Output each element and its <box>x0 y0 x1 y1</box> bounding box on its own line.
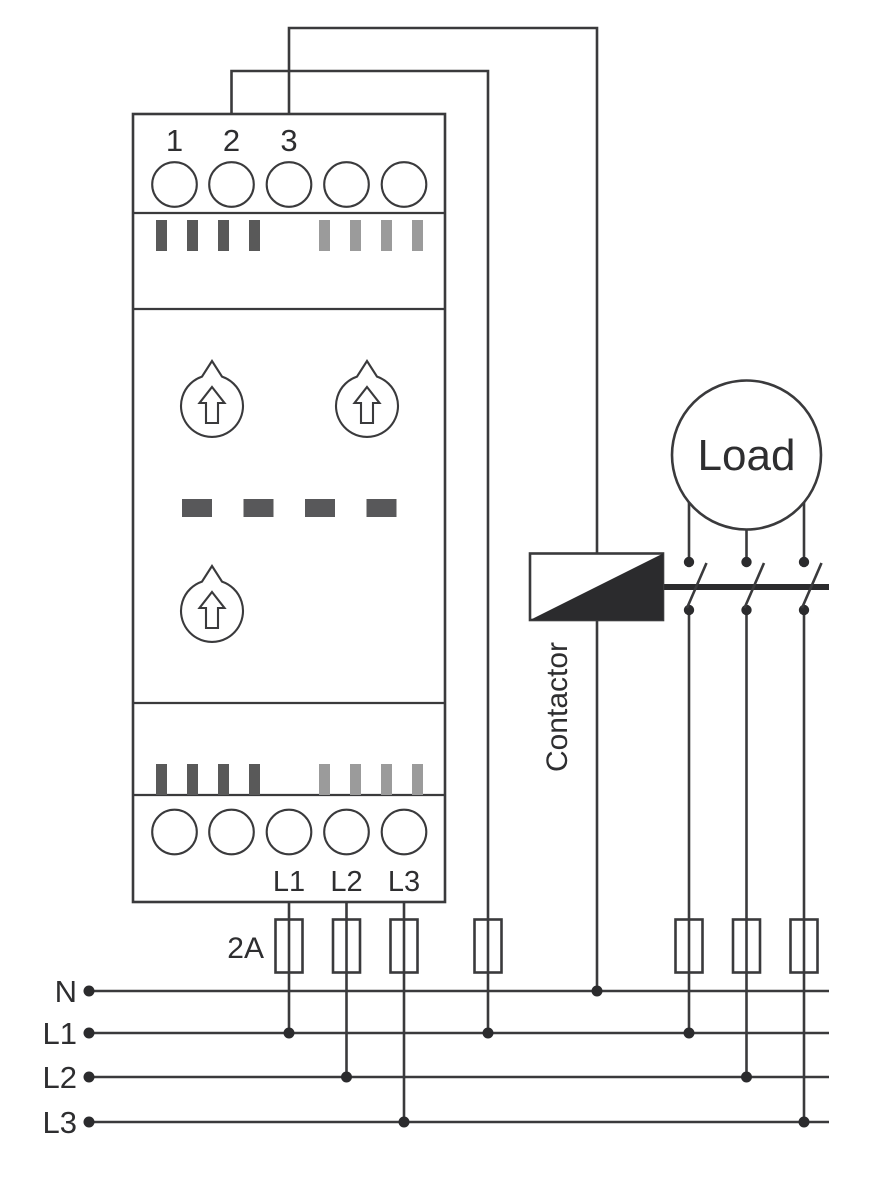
fuse-rating-label: 2A <box>227 932 264 965</box>
vent-slot <box>381 764 392 795</box>
terminal-number-label: 1 <box>166 123 183 158</box>
vent-slot <box>249 764 260 795</box>
bus-endpoint-dot <box>84 1028 95 1039</box>
terminal-hole <box>209 810 254 855</box>
vent-slot <box>381 220 392 251</box>
vent-slot <box>412 764 423 795</box>
terminal-hole <box>382 810 427 855</box>
contactor-contacts <box>663 557 829 615</box>
vent-slot <box>350 220 361 251</box>
bus-label-l2: L2 <box>43 1060 77 1095</box>
contact-dot <box>741 557 751 567</box>
junction-dot <box>799 1117 810 1128</box>
load-label: Load <box>698 431 796 480</box>
display-segment <box>305 499 335 517</box>
vent-slot <box>156 764 167 795</box>
terminal-hole <box>152 162 197 207</box>
junction-dot <box>341 1072 352 1083</box>
vent-slot <box>156 220 167 251</box>
fuses: 2A <box>227 920 817 973</box>
vent-slot <box>319 764 330 795</box>
vent-slot <box>218 764 229 795</box>
device-outline <box>133 114 445 902</box>
vent-slot <box>350 764 361 795</box>
junction-dot <box>741 1072 752 1083</box>
contact-dot <box>799 557 809 567</box>
junction-dot <box>399 1117 410 1128</box>
load: Load <box>672 381 821 530</box>
bus-label-n: N <box>55 974 77 1009</box>
terminal-hole <box>324 810 369 855</box>
display-segment <box>244 499 274 517</box>
vent-slot <box>412 220 423 251</box>
junctions <box>284 986 810 1128</box>
wiring-diagram: N L1 L2 L3 2A Load <box>0 0 874 1180</box>
bus-endpoint-dot <box>84 1117 95 1128</box>
vent-slot <box>249 220 260 251</box>
terminal-hole <box>267 810 312 855</box>
terminal-number-label: 2 <box>223 123 240 158</box>
power-bus: N L1 L2 L3 <box>43 974 829 1140</box>
vent-slot <box>319 220 330 251</box>
monitoring-relay-device: 1 2 3 <box>133 114 445 902</box>
schematic-svg: N L1 L2 L3 2A Load <box>0 0 874 1180</box>
contactor-label: Contactor <box>541 642 574 772</box>
terminal-l1-label: L1 <box>273 866 305 898</box>
vent-slot <box>187 764 198 795</box>
contact-dot <box>684 557 694 567</box>
vent-slot <box>187 220 198 251</box>
terminal-hole <box>152 810 197 855</box>
terminal-number-label: 3 <box>280 123 297 158</box>
bus-endpoint-dot <box>84 1072 95 1083</box>
terminal-hole <box>209 162 254 207</box>
junction-dot <box>684 1028 695 1039</box>
bus-label-l1: L1 <box>43 1016 77 1051</box>
terminal-hole <box>267 162 312 207</box>
terminal-l2-label: L2 <box>330 866 362 898</box>
junction-dot <box>592 986 603 997</box>
terminal-hole <box>324 162 369 207</box>
terminal-hole <box>382 162 427 207</box>
bus-label-l3: L3 <box>43 1105 77 1140</box>
terminal-l3-label: L3 <box>388 866 420 898</box>
bus-endpoint-dot <box>84 986 95 997</box>
junction-dot <box>284 1028 295 1039</box>
display-segment <box>182 499 212 517</box>
vent-slot <box>218 220 229 251</box>
junction-dot <box>483 1028 494 1039</box>
display-segment <box>367 499 397 517</box>
